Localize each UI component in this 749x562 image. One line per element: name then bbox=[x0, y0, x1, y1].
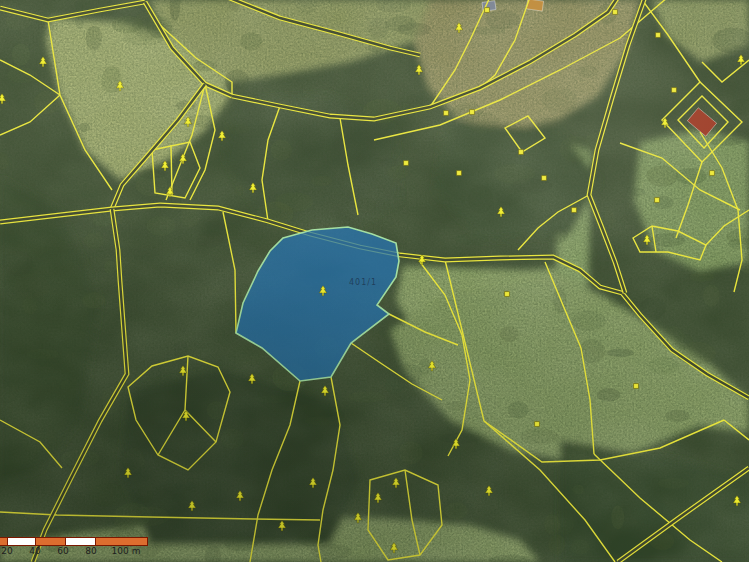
landuse-square-symbol bbox=[444, 111, 449, 116]
landuse-square-symbol bbox=[542, 176, 547, 181]
landuse-square-symbol bbox=[505, 292, 510, 297]
parcel-boundary-line bbox=[171, 145, 172, 195]
landuse-square-symbol bbox=[613, 10, 618, 15]
landuse-square-symbol bbox=[457, 171, 462, 176]
landuse-square-symbol bbox=[656, 33, 661, 38]
cadastral-map-viewport[interactable]: 401/1 20406080100 m bbox=[0, 0, 749, 562]
landuse-square-symbol bbox=[655, 198, 660, 203]
landuse-square-symbol bbox=[672, 88, 677, 93]
landuse-square-symbol bbox=[535, 422, 540, 427]
landuse-square-symbol bbox=[470, 110, 475, 115]
landuse-square-symbol bbox=[572, 208, 577, 213]
landuse-square-symbol bbox=[485, 8, 490, 13]
landuse-square-symbol bbox=[634, 384, 639, 389]
landuse-square-symbol bbox=[519, 150, 524, 155]
landuse-square-symbol bbox=[710, 171, 715, 176]
orthophoto-map-canvas bbox=[0, 0, 749, 562]
landuse-square-symbol bbox=[404, 161, 409, 166]
